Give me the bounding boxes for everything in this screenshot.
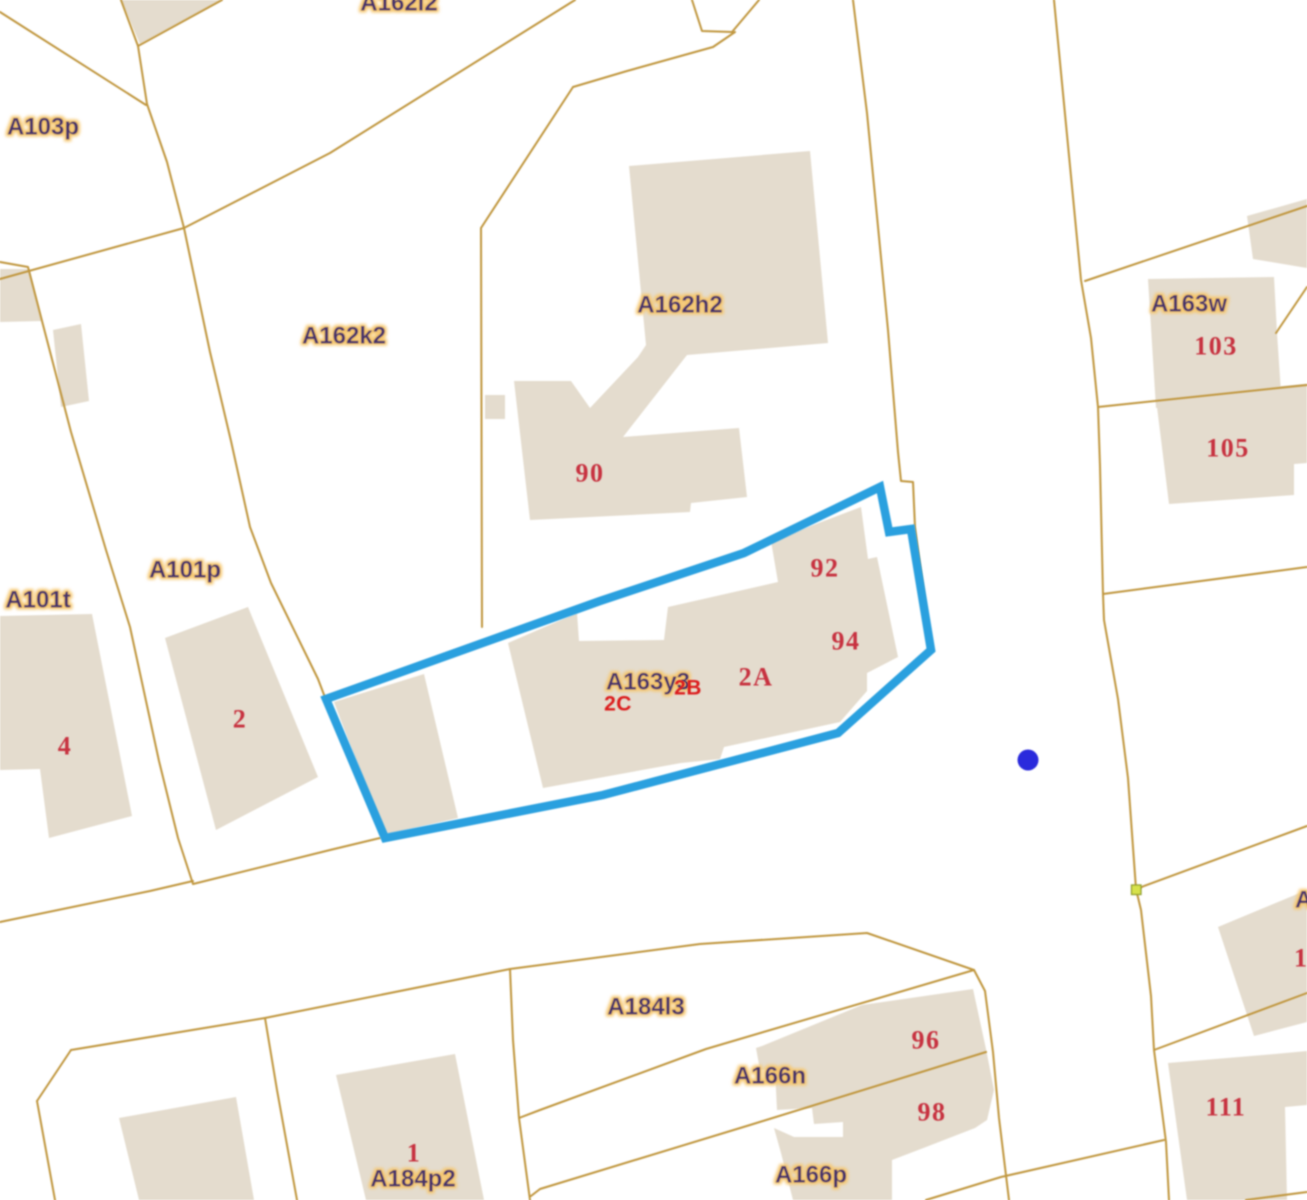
svg-text:2B: 2B [674,677,702,700]
svg-text:98: 98 [918,1098,947,1127]
svg-text:A166n: A166n [734,1063,806,1090]
svg-text:94: 94 [832,627,861,656]
svg-text:111: 111 [1206,1093,1247,1122]
svg-text:A162h2: A162h2 [637,292,722,319]
svg-text:90: 90 [576,459,605,488]
svg-text:2: 2 [233,705,248,734]
svg-text:2A: 2A [739,663,774,692]
svg-text:A162k2: A162k2 [302,323,386,350]
svg-text:A101p: A101p [149,557,221,584]
svg-text:A163w: A163w [1151,291,1227,318]
svg-text:4: 4 [58,732,73,761]
svg-text:A166p: A166p [775,1162,847,1189]
svg-text:103: 103 [1194,332,1238,361]
svg-text:2C: 2C [604,693,632,716]
svg-text:1: 1 [407,1139,422,1168]
svg-text:A162l2: A162l2 [360,0,437,17]
svg-text:92: 92 [811,554,840,583]
svg-text:96: 96 [912,1026,941,1055]
svg-text:A101t: A101t [5,587,70,614]
svg-text:A184l1: A184l1 [1295,887,1307,914]
svg-text:105: 105 [1206,434,1250,463]
svg-text:10: 10 [1294,944,1307,973]
svg-text:A103p: A103p [7,114,79,141]
svg-text:A184p2: A184p2 [370,1166,455,1193]
svg-text:A184l3: A184l3 [607,994,684,1021]
